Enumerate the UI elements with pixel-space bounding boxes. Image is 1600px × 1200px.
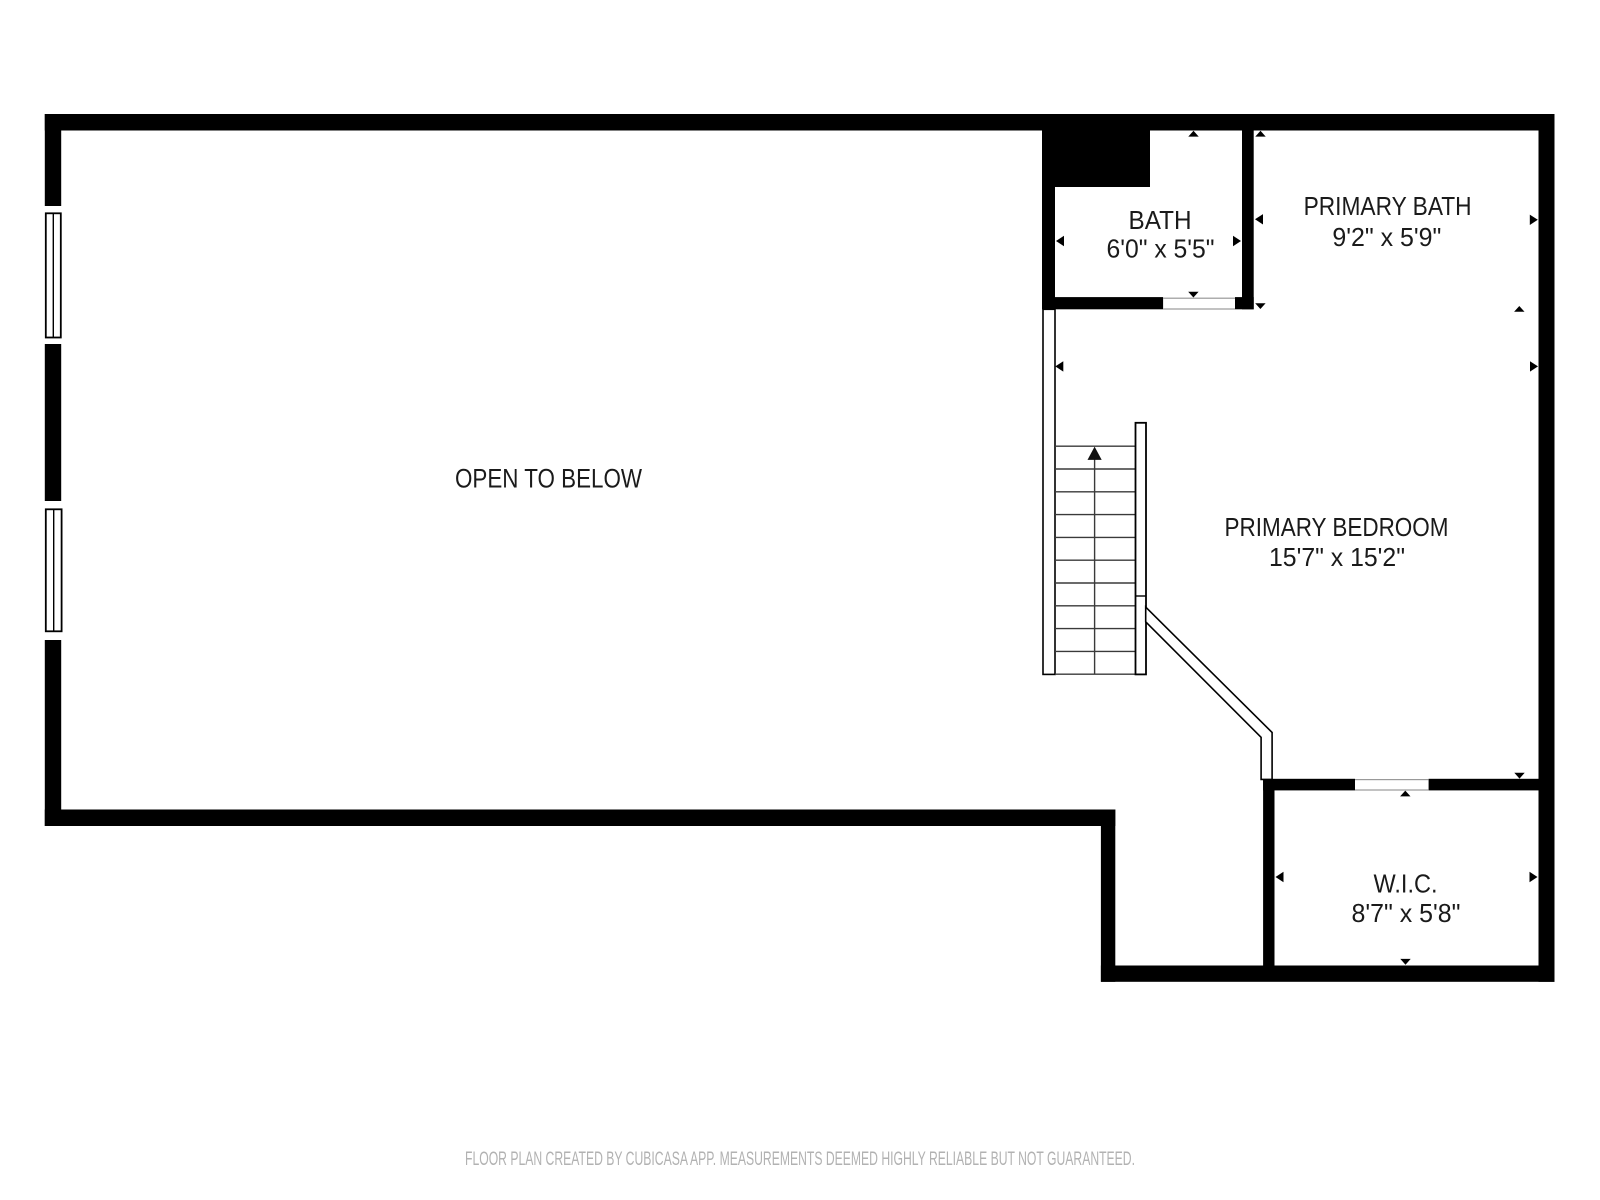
svg-text:15'7" x 15'2": 15'7" x 15'2": [1269, 542, 1405, 572]
svg-text:W.I.C.: W.I.C.: [1374, 869, 1438, 899]
svg-text:6'0" x 5'5": 6'0" x 5'5": [1107, 234, 1215, 264]
svg-text:8'7" x 5'8": 8'7" x 5'8": [1352, 898, 1461, 928]
svg-text:OPEN TO BELOW: OPEN TO BELOW: [455, 464, 642, 494]
svg-text:9'2" x 5'9": 9'2" x 5'9": [1332, 222, 1441, 252]
svg-text:PRIMARY BATH: PRIMARY BATH: [1304, 191, 1472, 221]
svg-text:FLOOR PLAN CREATED BY CUBICASA: FLOOR PLAN CREATED BY CUBICASA APP. MEAS…: [465, 1148, 1135, 1170]
svg-text:BATH: BATH: [1129, 205, 1192, 235]
svg-text:PRIMARY BEDROOM: PRIMARY BEDROOM: [1225, 512, 1449, 542]
